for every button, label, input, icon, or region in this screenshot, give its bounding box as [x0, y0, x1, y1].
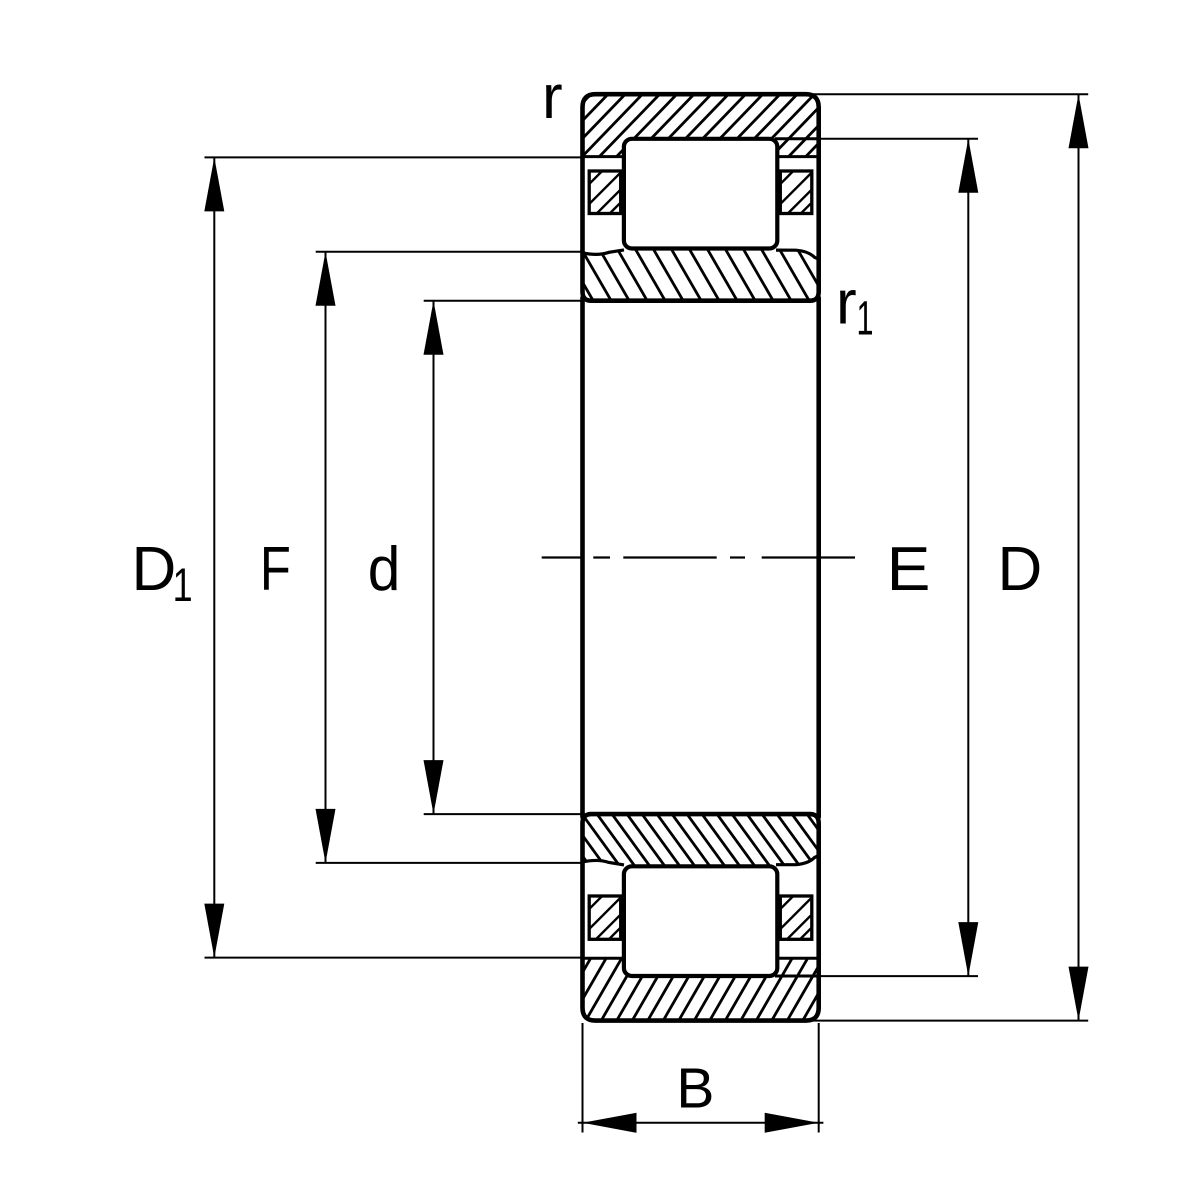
svg-text:D: D: [998, 535, 1043, 604]
svg-text:1: 1: [173, 558, 193, 611]
svg-text:D: D: [132, 535, 177, 604]
svg-text:r: r: [836, 268, 857, 337]
svg-text:r: r: [542, 63, 563, 132]
svg-text:B: B: [676, 1057, 714, 1121]
svg-text:d: d: [368, 535, 401, 604]
svg-text:E: E: [887, 535, 931, 604]
svg-text:1: 1: [857, 293, 874, 346]
svg-text:F: F: [260, 535, 291, 604]
